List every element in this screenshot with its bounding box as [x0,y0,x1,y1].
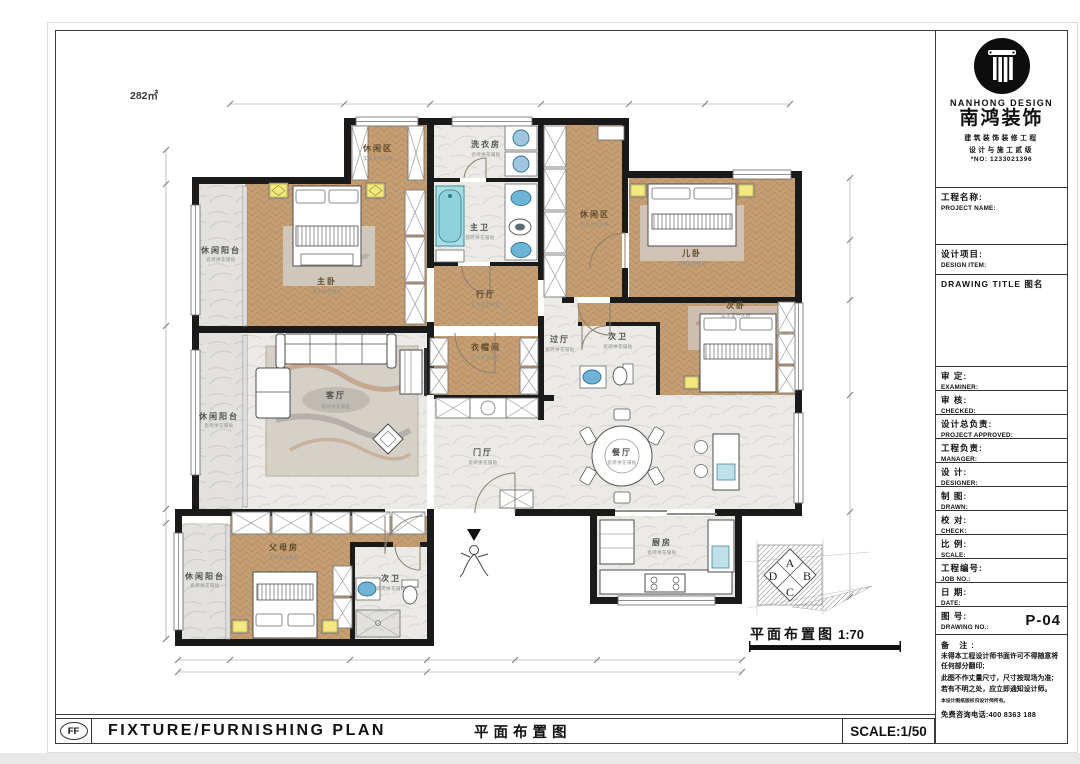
brand-subtitle-1: 建筑装饰装修工程 [964,132,1038,142]
brand-name-cn: 南鸿装饰 [959,108,1043,130]
notes-title: 备 注: [941,640,1062,651]
notes-block: 备 注: 未得本工程设计师书面许可不得随意将任何部分翻印; 此图不作丈量尺寸，尺… [936,635,1067,743]
company-logo-block: NANHONG DESIGN 南鸿装饰 建筑装饰装修工程 设计与施工贰级 *NO… [936,31,1067,188]
field-designer: 设 计: DESIGNER: [936,463,1067,487]
hotline-phone: 免费咨询电话:400 8363 188 [941,710,1062,720]
field-drawing-title: DRAWING TITLE 图名 [936,275,1067,367]
field-date: 日 期: DATE: [936,583,1067,607]
footer-title-cn: 平面布置图 [474,721,572,742]
footer-title-en: FIXTURE/FURNISHING PLAN [108,722,386,740]
field-scale: 比 例: SCALE: [936,535,1067,559]
plan-code-badge: FF [60,722,88,740]
field-project-name: 工程名称: PROJECT NAME: [936,188,1067,245]
drawing-title-label: DRAWING TITLE 图名 [941,278,1062,290]
field-design-item-en: DESIGN ITEM: [941,262,1062,269]
notes-line: 此图不作丈量尺寸，尺寸按现场为准; [941,674,1062,684]
footer-bar: FF FIXTURE/FURNISHING PLAN 平面布置图 SCALE:1… [55,718,935,744]
notes-line: 若有不明之处，应立即通知设计师。 [941,685,1062,695]
field-design-item: 设计项目: DESIGN ITEM: [936,245,1067,275]
field-project-name-cn: 工程名称: [941,191,1062,203]
field-project-approved: 设计总负责: PROJECT APPROVED: [936,415,1067,439]
field-checked: 审 核: CHECKED: [936,391,1067,415]
notes-line: 未得本工程设计师书面许可不得随意将任何部分翻印; [941,652,1062,673]
brand-name-en: NANHONG DESIGN [950,98,1053,108]
notes-fine-print: 本设计图纸版权归设计师所有。 [941,697,1062,704]
field-examiner: 审 定: EXAMINER: [936,367,1067,391]
nanhong-logo-icon [974,38,1030,94]
field-design-item-cn: 设计项目: [941,248,1062,260]
field-project-name-en: PROJECT NAME: [941,205,1062,212]
footer-scale: SCALE:1/50 [842,719,934,743]
field-drawn: 制 图: DRAWN: [936,487,1067,511]
plan-code-cell: FF [56,719,92,743]
field-manager: 工程负责: MANAGER: [936,439,1067,463]
field-check: 校 对: CHECK: [936,511,1067,535]
page-edge [0,753,1080,764]
field-drawing-no: 图 号: DRAWING NO.: P-04 [936,607,1067,635]
field-job-no: 工程编号: JOB NO.: [936,559,1067,583]
brand-subtitle-2: 设计与施工贰级 [969,144,1034,154]
page-outer-border [47,22,1078,753]
title-block: NANHONG DESIGN 南鸿装饰 建筑装饰装修工程 设计与施工贰级 *NO… [935,30,1068,744]
drawing-number-value: P-04 [1025,612,1061,629]
brand-reg-no: *NO: 1233021396 [971,156,1032,163]
